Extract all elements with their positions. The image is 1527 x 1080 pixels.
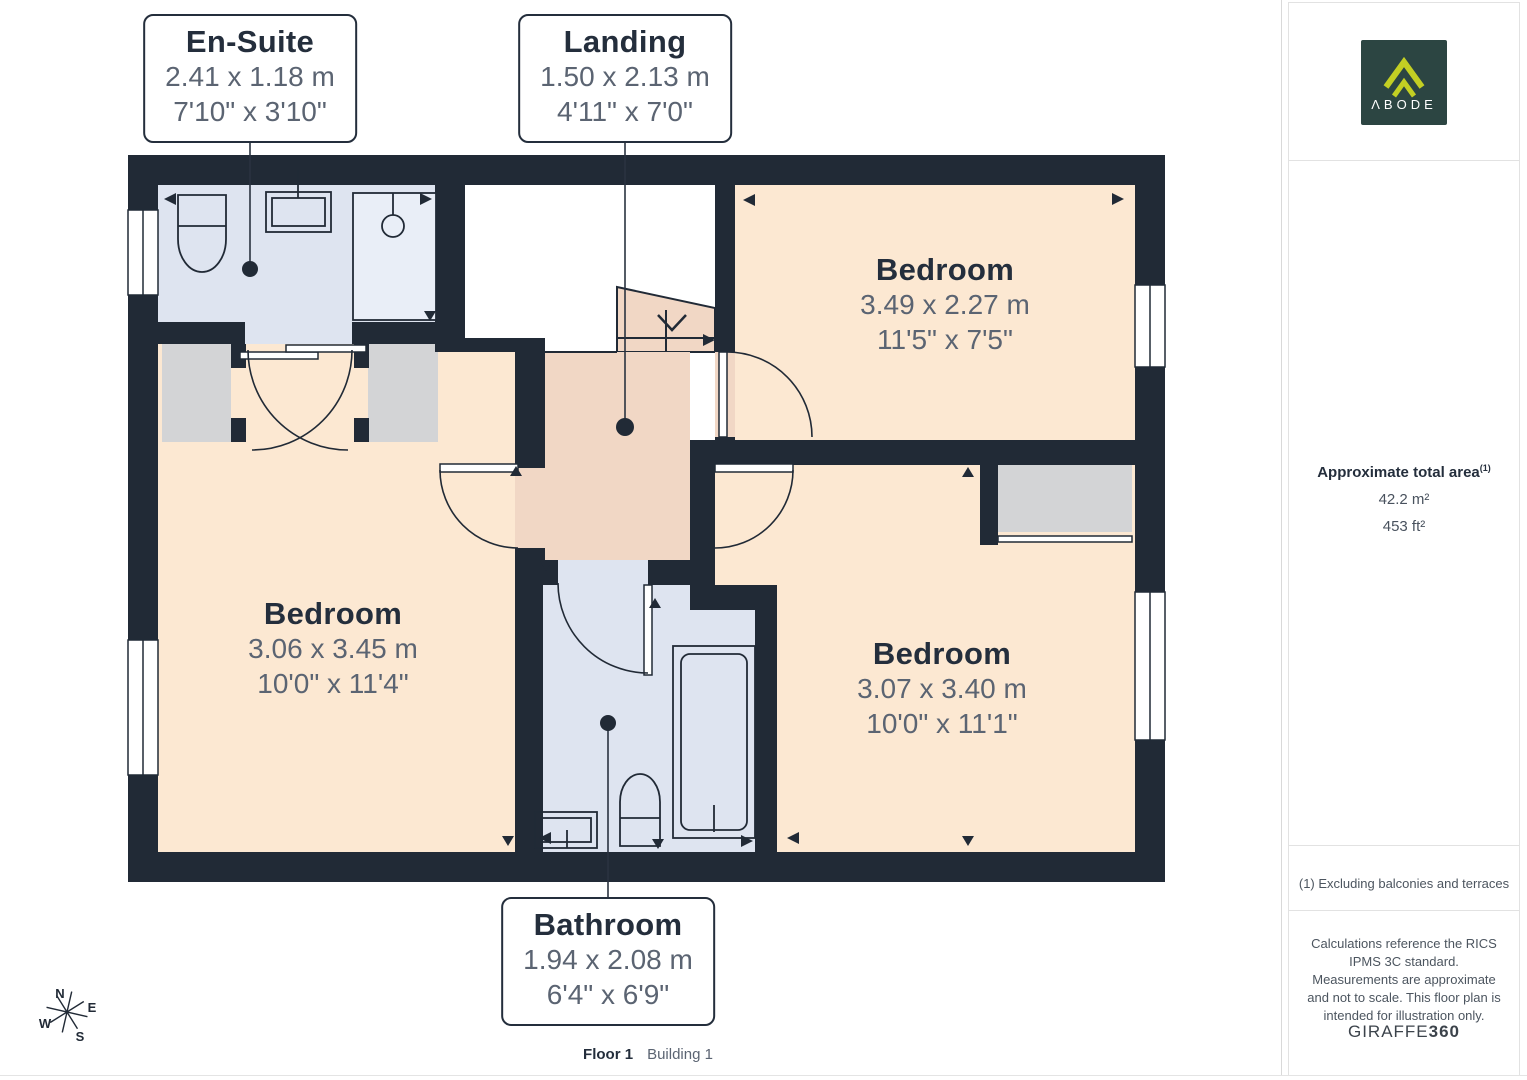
landing-marker-dot bbox=[616, 418, 634, 436]
wardrobe-left bbox=[162, 344, 231, 442]
bedroom-bottom-right-label: Bedroom 3.07 x 3.40 m 10'0" x 11'1" bbox=[857, 636, 1027, 741]
plan-footer: Floor 1Building 1 bbox=[448, 1046, 848, 1063]
page-bottom-rule bbox=[0, 1075, 1527, 1076]
sidebar-divider bbox=[1288, 160, 1520, 161]
ensuite-label: En-Suite 2.41 x 1.18 m 7'10" x 3'10" bbox=[143, 14, 357, 143]
room-title: Bedroom bbox=[860, 252, 1030, 288]
wardrobe-bedroom-right bbox=[998, 460, 1132, 532]
sidebar-divider bbox=[1288, 910, 1520, 911]
total-area-block: Approximate total area(1) 42.2 m² 453 ft… bbox=[1288, 463, 1520, 535]
room-dims-metric: 3.06 x 3.45 m bbox=[248, 632, 418, 667]
abode-logo: ΛBODE bbox=[1361, 40, 1447, 125]
compass-west-label: W bbox=[39, 1016, 52, 1031]
wardrobe-right bbox=[368, 344, 438, 442]
room-dims-imperial: 11'5" x 7'5" bbox=[860, 323, 1030, 358]
total-area-metric: 42.2 m² bbox=[1288, 491, 1520, 508]
room-dims-imperial: 10'0" x 11'1" bbox=[857, 707, 1027, 742]
compass-icon: N E W S bbox=[39, 986, 97, 1044]
room-dims-imperial: 4'11" x 7'0" bbox=[540, 95, 710, 130]
wardrobe-sliding-door bbox=[998, 536, 1132, 542]
compass-east-label: E bbox=[88, 1000, 97, 1015]
bathroom-label: Bathroom 1.94 x 2.08 m 6'4" x 6'9" bbox=[501, 897, 715, 1026]
room-title: Landing bbox=[540, 24, 710, 60]
room-title: Bedroom bbox=[857, 636, 1027, 672]
window bbox=[128, 210, 158, 295]
compass-south-label: S bbox=[76, 1029, 85, 1044]
compass-north-label: N bbox=[55, 986, 64, 1001]
bathroom-marker-dot bbox=[600, 715, 616, 731]
shower-icon bbox=[353, 193, 436, 320]
abode-logo-text: ΛBODE bbox=[1361, 97, 1447, 112]
disclaimer-text: Calculations reference the RICS IPMS 3C … bbox=[1306, 935, 1502, 1025]
room-dims-imperial: 10'0" x 11'4" bbox=[248, 667, 418, 702]
window bbox=[1135, 285, 1165, 367]
room-dims-imperial: 7'10" x 3'10" bbox=[165, 95, 335, 130]
abode-logo-mark bbox=[1361, 40, 1447, 125]
area-footnote: (1) Excluding balconies and terraces bbox=[1288, 876, 1520, 891]
floorplan-page: N E W S En-Suite 2.41 x 1.18 m 7'10" x 3… bbox=[0, 0, 1527, 1080]
bedroom-left-label: Bedroom 3.06 x 3.45 m 10'0" x 11'4" bbox=[248, 596, 418, 701]
footnote-marker: (1) bbox=[1480, 463, 1491, 473]
giraffe-word: GIRAFFE bbox=[1348, 1022, 1429, 1041]
hall-floor bbox=[545, 352, 690, 560]
floor-label: Floor 1 bbox=[583, 1046, 633, 1063]
room-title: Bathroom bbox=[523, 907, 693, 943]
building-label: Building 1 bbox=[647, 1046, 713, 1063]
sidebar-separator bbox=[1281, 0, 1282, 1076]
bedroom-top-right-label: Bedroom 3.49 x 2.27 m 11'5" x 7'5" bbox=[860, 252, 1030, 357]
giraffe-number: 360 bbox=[1429, 1022, 1460, 1041]
window bbox=[1135, 592, 1165, 740]
ensuite-marker-dot bbox=[242, 261, 258, 277]
stairwell-void bbox=[465, 185, 617, 352]
room-dims-imperial: 6'4" x 6'9" bbox=[523, 978, 693, 1013]
sidebar-panel bbox=[1288, 2, 1520, 1076]
room-dims-metric: 2.41 x 1.18 m bbox=[165, 60, 335, 95]
room-dims-metric: 3.07 x 3.40 m bbox=[857, 672, 1027, 707]
sidebar-divider bbox=[1288, 845, 1520, 846]
total-area-heading: Approximate total area(1) bbox=[1288, 463, 1520, 481]
room-dims-metric: 3.49 x 2.27 m bbox=[860, 288, 1030, 323]
total-area-imperial: 453 ft² bbox=[1288, 518, 1520, 535]
room-dims-metric: 1.94 x 2.08 m bbox=[523, 943, 693, 978]
room-dims-metric: 1.50 x 2.13 m bbox=[540, 60, 710, 95]
landing-label: Landing 1.50 x 2.13 m 4'11" x 7'0" bbox=[518, 14, 732, 143]
room-title: Bedroom bbox=[248, 596, 418, 632]
giraffe360-brand: GIRAFFE360 bbox=[1288, 1022, 1520, 1042]
room-title: En-Suite bbox=[165, 24, 335, 60]
window bbox=[128, 640, 158, 775]
